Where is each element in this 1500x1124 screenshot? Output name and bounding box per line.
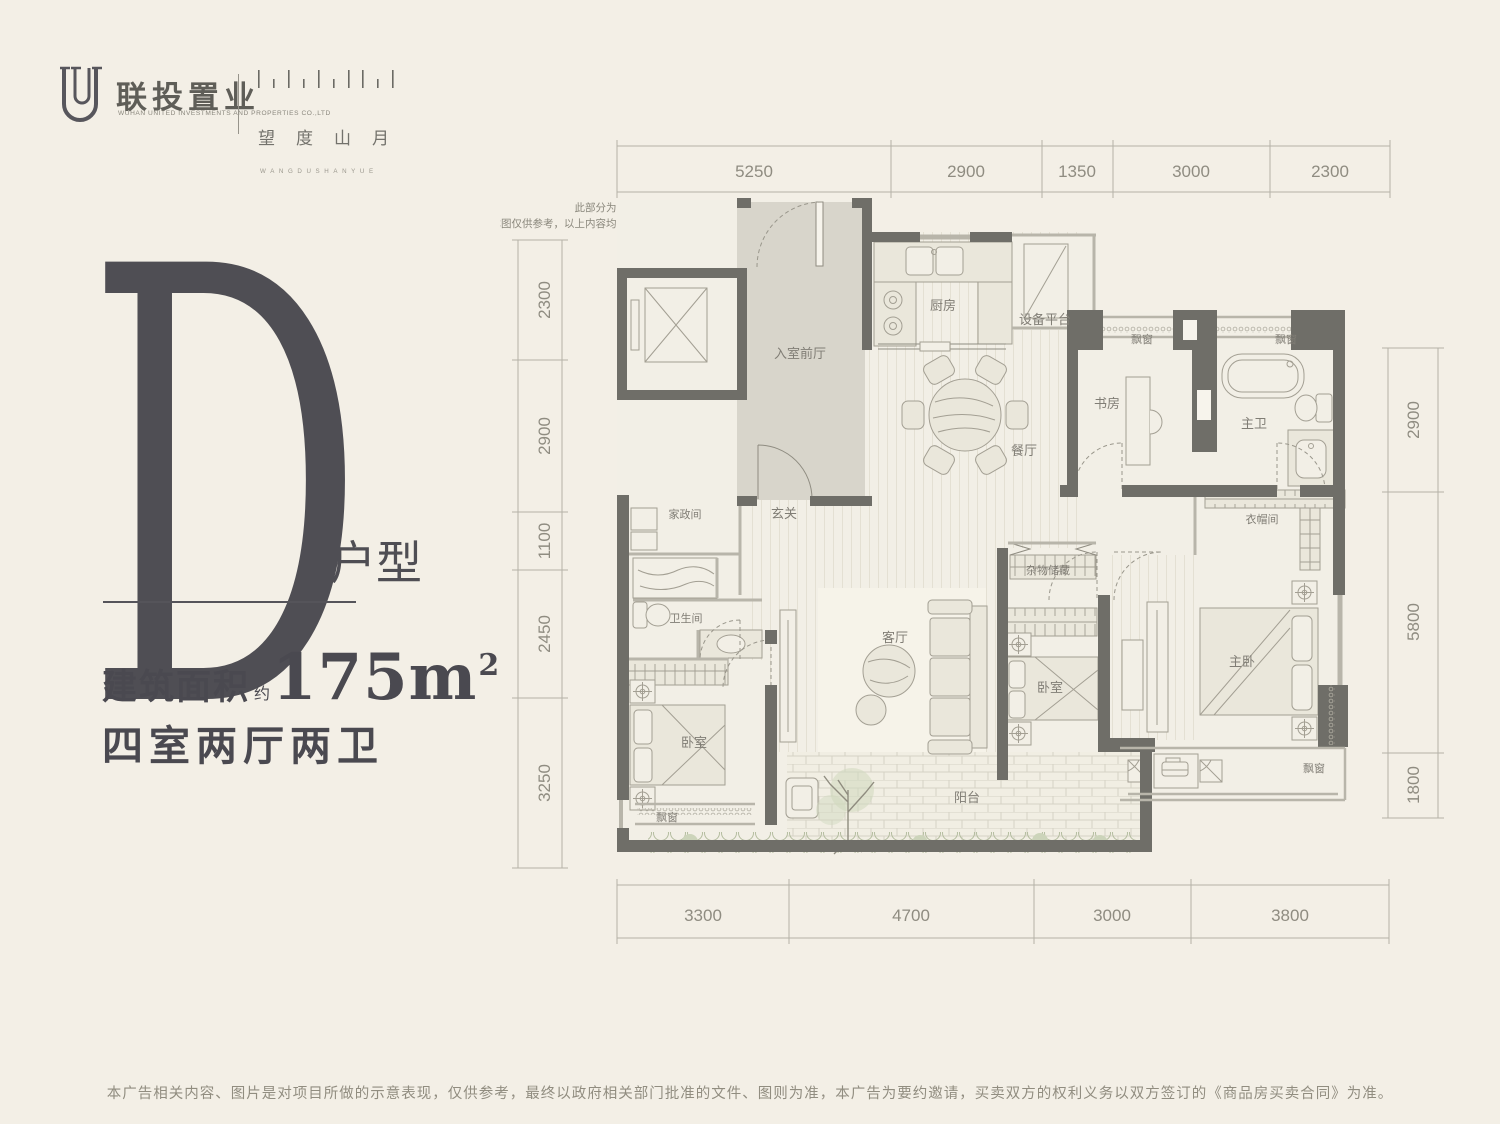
- area-approx: 约: [254, 680, 270, 704]
- label-foyer: 玄关: [771, 506, 797, 521]
- dim-label: 2900: [1404, 401, 1423, 439]
- brand-name-en: WUHAN UNITED INVESTMENTS AND PROPERTIES …: [118, 110, 331, 117]
- washing-machine: [786, 778, 818, 818]
- dimension-right: 2900 5800 1800: [1382, 348, 1444, 818]
- room-count-label: 四室两厅两卫: [102, 712, 384, 772]
- brand-divider: [238, 74, 239, 134]
- dim-label: 3000: [1093, 906, 1131, 925]
- label-kitchen: 厨房: [930, 298, 956, 313]
- label-bay2: 飘窗: [1275, 332, 1297, 346]
- label-living: 客厅: [882, 630, 908, 645]
- dim-label: 1100: [535, 523, 554, 560]
- label-closet: 衣帽间: [1246, 512, 1279, 526]
- dim-label: 3250: [535, 764, 554, 802]
- area-superscript: 2: [478, 648, 499, 683]
- shower: [633, 558, 717, 598]
- dim-label: 5800: [1404, 603, 1423, 641]
- divider-rule: [103, 601, 356, 603]
- label-dining: 餐厅: [1011, 443, 1037, 458]
- dim-label: 2900: [535, 417, 554, 455]
- dim-label: 3000: [1172, 162, 1210, 181]
- dim-label: 3800: [1271, 906, 1309, 925]
- floor-plan: 5250 2900 1350 3000 2300 3300 4700 3000 …: [500, 140, 1500, 960]
- label-balcony: 阳台: [954, 790, 980, 805]
- dim-label: 5250: [735, 162, 773, 181]
- label-bay1: 飘窗: [1131, 332, 1153, 346]
- disclaimer-text: 本广告相关内容、图片是对项目所做的示意表现，仅供参考，最终以政府相关部门批准的文…: [0, 1082, 1500, 1103]
- wardrobe-bedroom2: [1005, 608, 1097, 636]
- vanity-master: [1288, 430, 1334, 486]
- sofa: [928, 600, 987, 754]
- brand-tick-marks: [258, 70, 408, 90]
- label-bedroom1: 卧室: [681, 735, 707, 750]
- label-study: 书房: [1094, 396, 1120, 411]
- dim-label: 2300: [535, 281, 554, 319]
- label-housekeeping: 家政间: [669, 507, 702, 521]
- dim-label: 2450: [535, 615, 554, 653]
- dim-label: 4700: [892, 906, 930, 925]
- vanity-shared: [700, 630, 762, 658]
- label-master-bath: 主卫: [1241, 416, 1267, 431]
- entry-door-leaf: [816, 202, 823, 266]
- dimension-bottom: 3300 4700 3000 3800: [617, 879, 1389, 944]
- toilet-master: [1295, 394, 1332, 422]
- label-equipment: 设备平台: [1019, 312, 1071, 327]
- label-entry: 入室前厅: [774, 346, 826, 361]
- housekeeping-cabinets: [631, 508, 657, 550]
- area-line: 建筑面积 约 175m 2: [102, 640, 498, 715]
- bathtub: [1222, 354, 1304, 398]
- label-bay3: 飘窗: [656, 810, 678, 824]
- label-bedroom2: 卧室: [1037, 680, 1063, 695]
- dim-label: 3300: [684, 906, 722, 925]
- label-storage: 杂物储藏: [1026, 563, 1070, 577]
- dimension-top: 5250 2900 1350 3000 2300: [617, 140, 1390, 198]
- area-prefix: 建筑面积: [102, 659, 250, 710]
- label-master-bedroom: 主卧: [1229, 654, 1255, 669]
- label-bay4: 飘窗: [1303, 761, 1325, 775]
- dim-label: 1800: [1404, 766, 1423, 804]
- area-value: 175m: [272, 640, 477, 715]
- unit-type-label: 户型: [330, 534, 422, 593]
- dim-label: 2900: [947, 162, 985, 181]
- label-bathroom: 卫生间: [670, 611, 703, 625]
- brand-logo-monogram: [58, 64, 110, 126]
- dim-label: 2300: [1311, 162, 1349, 181]
- dim-label: 1350: [1058, 162, 1096, 181]
- dimension-left: 2300 2900 1100 2450 3250: [512, 240, 568, 868]
- toilet-shared: [633, 602, 670, 628]
- equipment-platform: [1024, 244, 1068, 318]
